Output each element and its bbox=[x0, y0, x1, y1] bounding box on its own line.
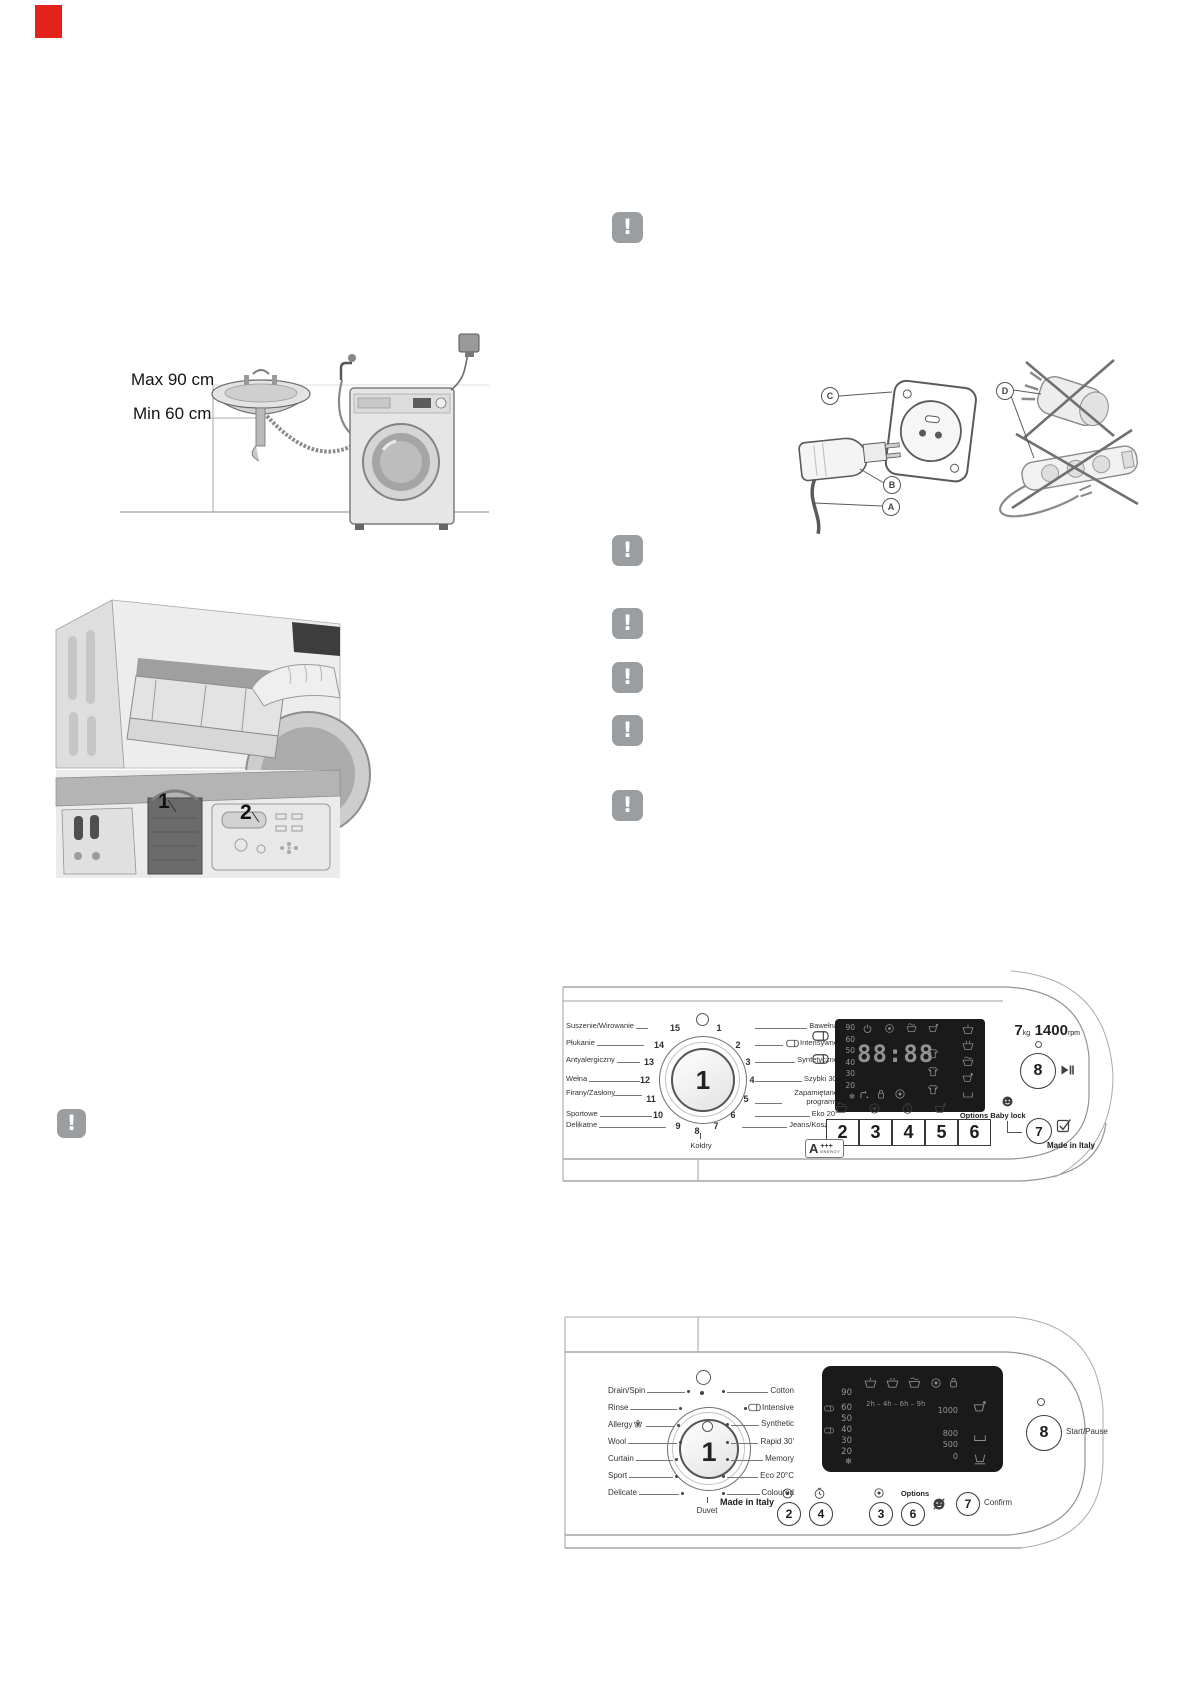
confirm-label: Confirm bbox=[984, 1498, 1012, 1507]
flower-icon bbox=[633, 1419, 643, 1429]
power-connection-figure bbox=[740, 330, 1160, 530]
display-temp: 20 bbox=[839, 1082, 855, 1090]
basin-icon bbox=[864, 1377, 877, 1390]
basin-icon bbox=[973, 1400, 987, 1414]
warning-icon: ! bbox=[612, 790, 643, 821]
basin-icon bbox=[962, 1056, 974, 1068]
program-label: Szybki 30' bbox=[753, 1075, 838, 1084]
display-temp: 40 bbox=[836, 1426, 852, 1435]
drawer-compartment-icon bbox=[786, 1039, 799, 1048]
warning-icon: ! bbox=[612, 662, 643, 693]
display-temp: 90 bbox=[836, 1389, 852, 1398]
spin-icon bbox=[884, 1023, 895, 1034]
program-label: Wool bbox=[608, 1437, 682, 1446]
function-button-4: 4 bbox=[892, 1119, 925, 1146]
program-label: Wełna bbox=[566, 1075, 642, 1084]
dial-number: 8 bbox=[689, 1126, 705, 1136]
detergent-drawer-figure-compartments bbox=[56, 770, 340, 878]
plug-label-c: C bbox=[821, 387, 839, 405]
delay-timer-icon bbox=[813, 1487, 826, 1500]
drawer-compartment-icon bbox=[812, 1030, 829, 1042]
wash-icon bbox=[906, 1023, 917, 1034]
program-label: Eco 20°C bbox=[722, 1471, 794, 1480]
shirt-icon bbox=[927, 1048, 939, 1060]
display-temp: 60 bbox=[839, 1036, 855, 1044]
warning-icon: ! bbox=[57, 1109, 86, 1138]
start-pause-button: 8 bbox=[1020, 1053, 1056, 1089]
program-label: Płukanie bbox=[566, 1039, 646, 1048]
warning-icon: ! bbox=[612, 608, 643, 639]
power-led bbox=[696, 1013, 709, 1026]
manual-page: Max 90 cm Min 60 cm bbox=[0, 0, 1190, 1684]
function-button-6: 6 bbox=[901, 1502, 925, 1526]
spin-speed: 800 bbox=[932, 1430, 958, 1438]
spin-icon bbox=[894, 1088, 906, 1100]
spin-speed: 1000 bbox=[932, 1407, 958, 1415]
program-label: Cotton bbox=[722, 1386, 794, 1395]
options-label: Options bbox=[893, 1489, 937, 1498]
basin-icon bbox=[962, 1088, 974, 1100]
power-icon bbox=[862, 1023, 873, 1034]
baby-lock-icon bbox=[932, 1497, 946, 1511]
warning-icon: ! bbox=[612, 535, 643, 566]
display-temp: 50 bbox=[839, 1047, 855, 1055]
program-label: Drain/Spin bbox=[608, 1386, 690, 1395]
basin-icon bbox=[973, 1430, 987, 1444]
made-in-label: Made in Italy bbox=[1015, 1141, 1095, 1150]
basin-icon bbox=[973, 1452, 987, 1466]
display-temp: 20 bbox=[836, 1448, 852, 1457]
wash-icon bbox=[928, 1023, 939, 1034]
dial-position: 1 bbox=[696, 1065, 710, 1096]
program-label: Rinse bbox=[608, 1403, 682, 1412]
min-height-label: Min 60 cm bbox=[133, 404, 211, 424]
program-label: Antyalergiczny bbox=[566, 1056, 642, 1065]
shirt-icon bbox=[927, 1066, 939, 1078]
program-label: Sportowe bbox=[566, 1110, 654, 1119]
dial-pointer bbox=[702, 1421, 713, 1432]
basin-icon bbox=[962, 1072, 974, 1084]
max-height-label: Max 90 cm bbox=[131, 370, 214, 390]
display-temp: 60 bbox=[836, 1404, 852, 1413]
basin-icon bbox=[962, 1040, 974, 1052]
detergent-drawer-figure-open bbox=[56, 600, 340, 768]
dial-tick bbox=[700, 1133, 701, 1139]
program-label: Memory bbox=[726, 1454, 794, 1463]
dial-number: 14 bbox=[651, 1040, 667, 1050]
energy-class-badge: A +++ energy bbox=[805, 1139, 844, 1158]
program-label: Delicate bbox=[608, 1488, 684, 1497]
wash-temp-icon bbox=[781, 1487, 794, 1500]
dial-position: 1 bbox=[701, 1437, 716, 1468]
program-label: Sport bbox=[608, 1471, 678, 1480]
basin-icon bbox=[908, 1377, 921, 1390]
delay-timer-icon bbox=[901, 1102, 914, 1115]
plug-label-b: B bbox=[883, 476, 901, 494]
dial-number: 2 bbox=[730, 1040, 746, 1050]
time-display: 88:88 bbox=[857, 1040, 934, 1068]
function-button-6: 6 bbox=[958, 1119, 991, 1146]
lock-icon bbox=[875, 1088, 887, 1100]
display-temp: 30 bbox=[836, 1437, 852, 1446]
program-label: Curtain bbox=[608, 1454, 678, 1463]
program-label: Firany/Zasłony bbox=[566, 1089, 644, 1098]
display-temp: 50 bbox=[836, 1415, 852, 1424]
program-label: Kołdry bbox=[681, 1141, 721, 1150]
warning-icon: ! bbox=[612, 212, 643, 243]
dial-number: 7 bbox=[708, 1121, 724, 1131]
delay-times: 2h – 4h – 6h – 9h bbox=[866, 1400, 925, 1408]
tap-icon bbox=[858, 1088, 870, 1100]
installation-figure bbox=[95, 318, 495, 540]
display-snowflake: ❄ bbox=[839, 1093, 855, 1101]
drawer-compartment-2-label: 2 bbox=[240, 802, 252, 823]
function-button-3: 3 bbox=[869, 1502, 893, 1526]
drawer-compartment-icon bbox=[812, 1053, 829, 1065]
dial-number: 1 bbox=[711, 1023, 727, 1033]
drawer-compartment-icon bbox=[748, 1403, 761, 1412]
display-temp: 90 bbox=[839, 1024, 855, 1032]
function-button-3: 3 bbox=[859, 1119, 892, 1146]
shirt-icon bbox=[927, 1084, 939, 1096]
play-pause-icon bbox=[1059, 1062, 1075, 1078]
program-label: Delikatne bbox=[566, 1121, 668, 1130]
dial-number: 6 bbox=[725, 1110, 741, 1120]
baby-lock-connector bbox=[1007, 1121, 1022, 1133]
dial-number: 9 bbox=[670, 1121, 686, 1131]
drawer-compartment-icon bbox=[824, 1405, 834, 1412]
made-in-label: Made in Italy bbox=[720, 1497, 774, 1507]
dial-number: 11 bbox=[643, 1094, 659, 1104]
program-label: Rapid 30' bbox=[726, 1437, 794, 1446]
drawer-compartment-icon bbox=[824, 1427, 834, 1434]
program-label: Allergy bbox=[608, 1419, 680, 1429]
dial-number: 5 bbox=[738, 1094, 754, 1104]
confirm-button: 7 bbox=[956, 1492, 980, 1516]
confirm-check-icon bbox=[1056, 1117, 1072, 1133]
basin-icon bbox=[962, 1024, 974, 1036]
baby-face-icon bbox=[1001, 1095, 1014, 1108]
program-label: Zapamiętane programy bbox=[753, 1089, 838, 1106]
basin-icon bbox=[886, 1377, 899, 1390]
page-corner-mark bbox=[35, 5, 62, 38]
lock-icon bbox=[947, 1376, 960, 1389]
plug-label-a: A bbox=[882, 498, 900, 516]
start-led bbox=[1035, 1041, 1042, 1048]
dial-tick bbox=[707, 1497, 708, 1503]
plug-label-d: D bbox=[996, 382, 1014, 400]
baby-lock-label: Baby lock bbox=[985, 1111, 1031, 1120]
program-label: Intensive bbox=[726, 1403, 794, 1412]
program-label: Synthetic bbox=[726, 1419, 794, 1428]
function-button-4: 4 bbox=[809, 1502, 833, 1526]
stain-level-icon bbox=[934, 1102, 947, 1115]
display-temp: 40 bbox=[839, 1059, 855, 1067]
wash-temp-icon bbox=[835, 1102, 848, 1115]
spin-speed: 500 bbox=[932, 1441, 958, 1449]
program-label: Suszenie/Wirowanie bbox=[566, 1022, 650, 1031]
status-led bbox=[700, 1391, 704, 1395]
spin-icon bbox=[930, 1377, 942, 1389]
warning-icon: ! bbox=[612, 715, 643, 746]
start-pause-button: 8 bbox=[1026, 1415, 1062, 1451]
display-temp: 30 bbox=[839, 1070, 855, 1078]
function-button-5: 5 bbox=[925, 1119, 958, 1146]
spin-speed: 0 bbox=[932, 1453, 958, 1461]
function-button-2: 2 bbox=[777, 1502, 801, 1526]
display-snowflake: ❄ bbox=[836, 1458, 852, 1467]
power-led bbox=[696, 1370, 711, 1385]
program-label: Jeans/Koszule bbox=[740, 1121, 838, 1130]
spin-speed-icon bbox=[873, 1487, 885, 1499]
capacity-rating: 7kg 1400rpm bbox=[1000, 1022, 1080, 1040]
dial-number: 15 bbox=[667, 1023, 683, 1033]
program-dial-knob: 1 bbox=[671, 1048, 735, 1112]
spin-speed-icon bbox=[868, 1102, 881, 1115]
drawer-compartment-1-label: 1 bbox=[158, 791, 170, 812]
dial-number: 13 bbox=[641, 1057, 657, 1067]
start-led bbox=[1037, 1398, 1045, 1406]
start-pause-label: Start/Pause bbox=[1066, 1427, 1108, 1436]
program-label: Eko 20° bbox=[753, 1110, 838, 1119]
program-label: Duvet bbox=[687, 1506, 727, 1515]
